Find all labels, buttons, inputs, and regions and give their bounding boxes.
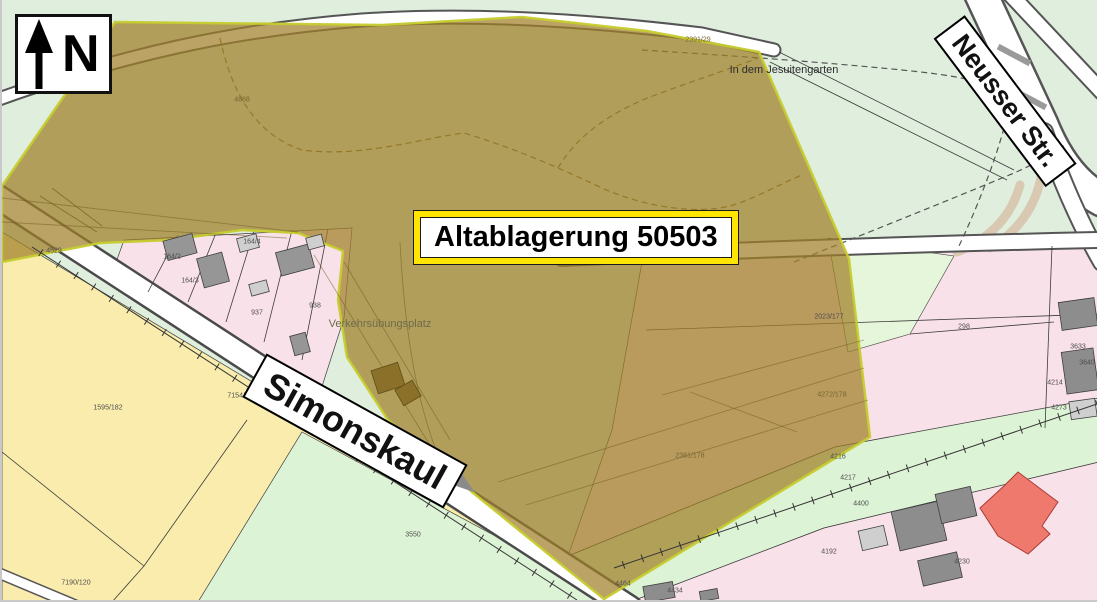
north-letter: N bbox=[62, 28, 100, 80]
map-viewport: In dem JesuitengartenVerkehrsübungsplatz… bbox=[0, 0, 1097, 602]
map-canvas bbox=[2, 0, 1097, 602]
north-arrow-icon bbox=[18, 17, 60, 91]
site-title-label: Altablagerung 50503 bbox=[414, 211, 738, 264]
north-indicator: N bbox=[15, 14, 112, 94]
